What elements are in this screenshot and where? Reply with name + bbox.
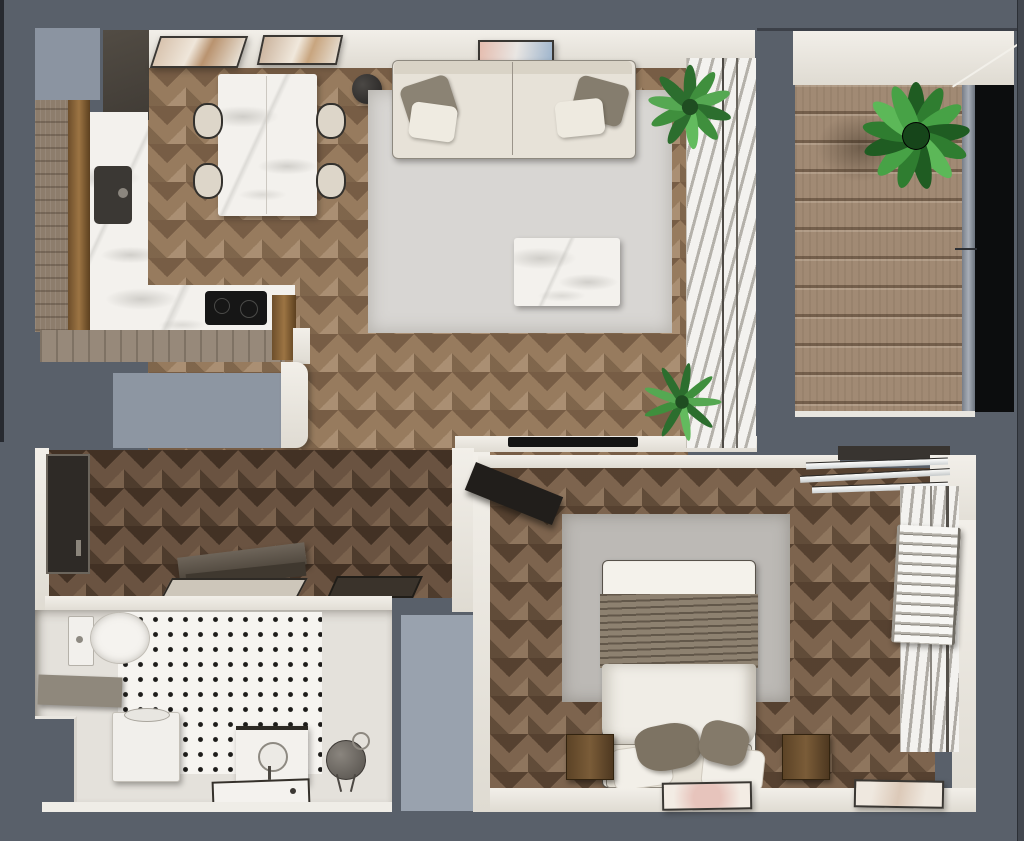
dining-chair [316, 103, 346, 139]
dining-table-seam [266, 76, 267, 214]
dining-chair [316, 163, 346, 199]
coffee-table [514, 238, 620, 306]
toilet-bowl [90, 612, 150, 664]
kitchen-tall-cabinet-run [35, 95, 68, 332]
tv-living [508, 437, 638, 447]
bedroom-top-wall [478, 455, 840, 468]
vanity-sink [258, 742, 288, 772]
bedroom-art-frame [662, 781, 752, 811]
kitchen-faucet [118, 188, 128, 198]
gray-pillar-block [35, 28, 100, 100]
balcony-glass-railing [975, 85, 1014, 412]
entry-door-handle [76, 540, 81, 556]
bedroom-left-wall [473, 452, 490, 812]
wall-stub [293, 328, 310, 364]
cooktop-burner [214, 298, 230, 314]
entry-door [46, 454, 90, 574]
bathroom-bottom-wall [42, 802, 392, 812]
dining-chair [193, 163, 223, 199]
potted-plant [645, 62, 735, 152]
washing-machine [112, 712, 180, 782]
bed-mattress-top [604, 562, 754, 596]
balcony-bottom-edge [795, 411, 975, 417]
washing-machine-lid [124, 708, 170, 722]
storage-white-cap [281, 362, 308, 448]
toilet-flush-button [76, 636, 83, 643]
kitchen-accent-wall [103, 30, 149, 120]
kitchen-cabinet-bronze-face [68, 98, 90, 330]
mirror-ring [352, 732, 370, 750]
dining-table [218, 74, 317, 216]
dining-chair [193, 103, 223, 139]
floor-plan-scene [0, 0, 1024, 841]
towel-radiator [891, 524, 961, 645]
gray-wardrobe-block [401, 615, 476, 811]
railing-mid-line [955, 248, 977, 250]
bed-throw-taupe [600, 594, 758, 668]
potted-plant [640, 360, 724, 444]
gray-storage-block [113, 373, 283, 448]
bathroom-notch [35, 716, 77, 812]
nightstand [782, 734, 830, 780]
wall-art-frame [257, 35, 343, 65]
door-mat-dark [327, 576, 423, 598]
balcony-top-wall [793, 31, 1014, 85]
window-frame-line [736, 58, 738, 448]
bathroom-shelf [38, 675, 123, 708]
sofa-backrest [394, 61, 632, 74]
bedroom-art-frame [854, 779, 944, 809]
edge-right-dark [1017, 0, 1024, 841]
edge-left-dark [0, 0, 4, 442]
kitchen-counter-front-face [40, 330, 285, 362]
sofa-seat-divider [512, 62, 513, 155]
balcony-bush [858, 78, 974, 194]
shower-drain [290, 788, 296, 794]
cooktop-burner [240, 300, 258, 318]
sofa-pillow-white [554, 98, 606, 139]
wall-art-frame [150, 36, 248, 68]
sofa-pillow-white [408, 101, 459, 143]
vanity-faucet [268, 766, 271, 780]
nightstand [566, 734, 614, 780]
